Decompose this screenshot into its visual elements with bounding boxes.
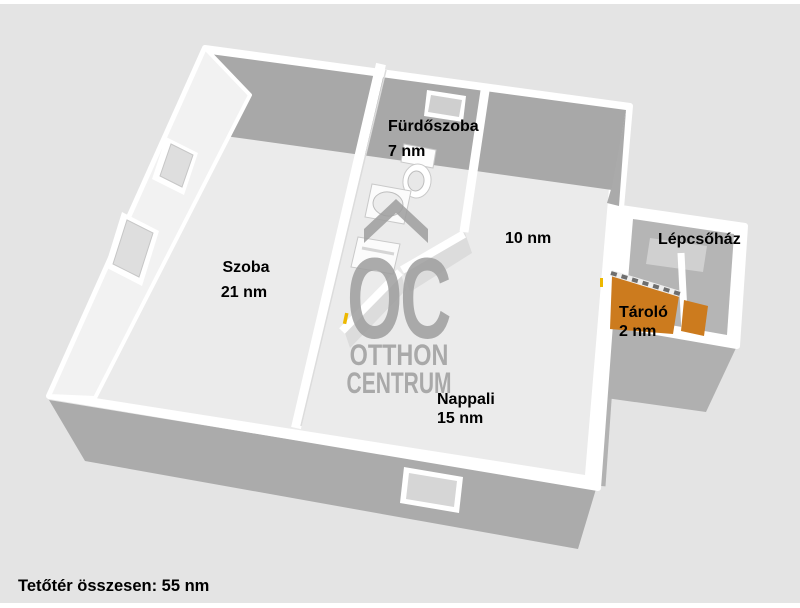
door-mark <box>600 278 603 287</box>
furdoszoba-label: Fürdőszoba <box>388 118 479 135</box>
lepcsohaz-label: Lépcsőház <box>658 231 741 248</box>
floorplan-page: OC OTTHON CENTRUM Szoba 21 nm Fürdőszoba… <box>0 0 800 608</box>
nappali-area: 15 nm <box>437 410 483 427</box>
furdoszoba-area: 7 nm <box>388 143 425 160</box>
total-area-caption: Tetőtér összesen: 55 nm <box>18 577 209 595</box>
tarolo-label: Tároló <box>619 304 668 321</box>
room10-area: 10 nm <box>505 230 551 247</box>
nappali-label: Nappali <box>437 391 495 408</box>
szoba-area: 21 nm <box>221 284 267 301</box>
watermark-name-line2: CENTRUM <box>347 368 452 400</box>
szoba-label: Szoba <box>222 259 269 276</box>
stair-run <box>681 300 708 336</box>
tarolo-area: 2 nm <box>619 323 656 340</box>
floorplan-canvas: OC OTTHON CENTRUM Szoba 21 nm Fürdőszoba… <box>0 0 800 608</box>
